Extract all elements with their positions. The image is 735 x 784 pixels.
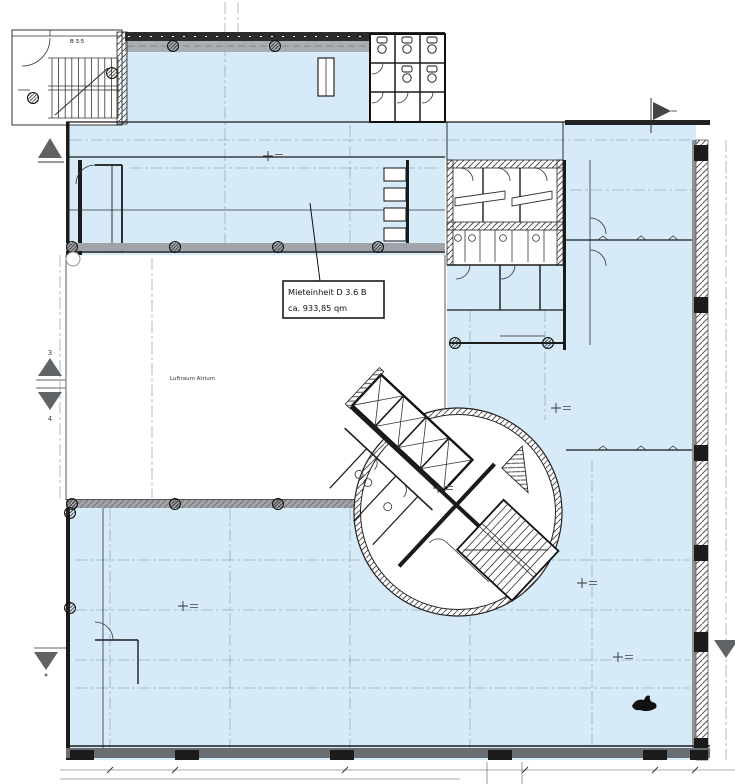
exterior-stairwell: B 3.5 (12, 30, 122, 125)
atrium-label: Luftraum Atrium (170, 376, 215, 382)
floor-plan-canvas: B 3.5 (0, 0, 735, 784)
unit-label-line2: ca. 933,85 qm (288, 303, 347, 313)
stairwell-label: B 3.5 (70, 39, 85, 45)
locker-wall-east (384, 160, 409, 243)
floor-plan-drawing: B 3.5 (0, 0, 735, 784)
section-number-lower: 4 (48, 415, 53, 423)
section-number-upper: 3 (48, 349, 52, 357)
dimension-lines (60, 762, 735, 784)
hatched-west-wall (117, 32, 127, 124)
wc-block-north (370, 34, 445, 122)
unit-label-line1: Mieteinheit D 3.6 B (288, 287, 367, 297)
